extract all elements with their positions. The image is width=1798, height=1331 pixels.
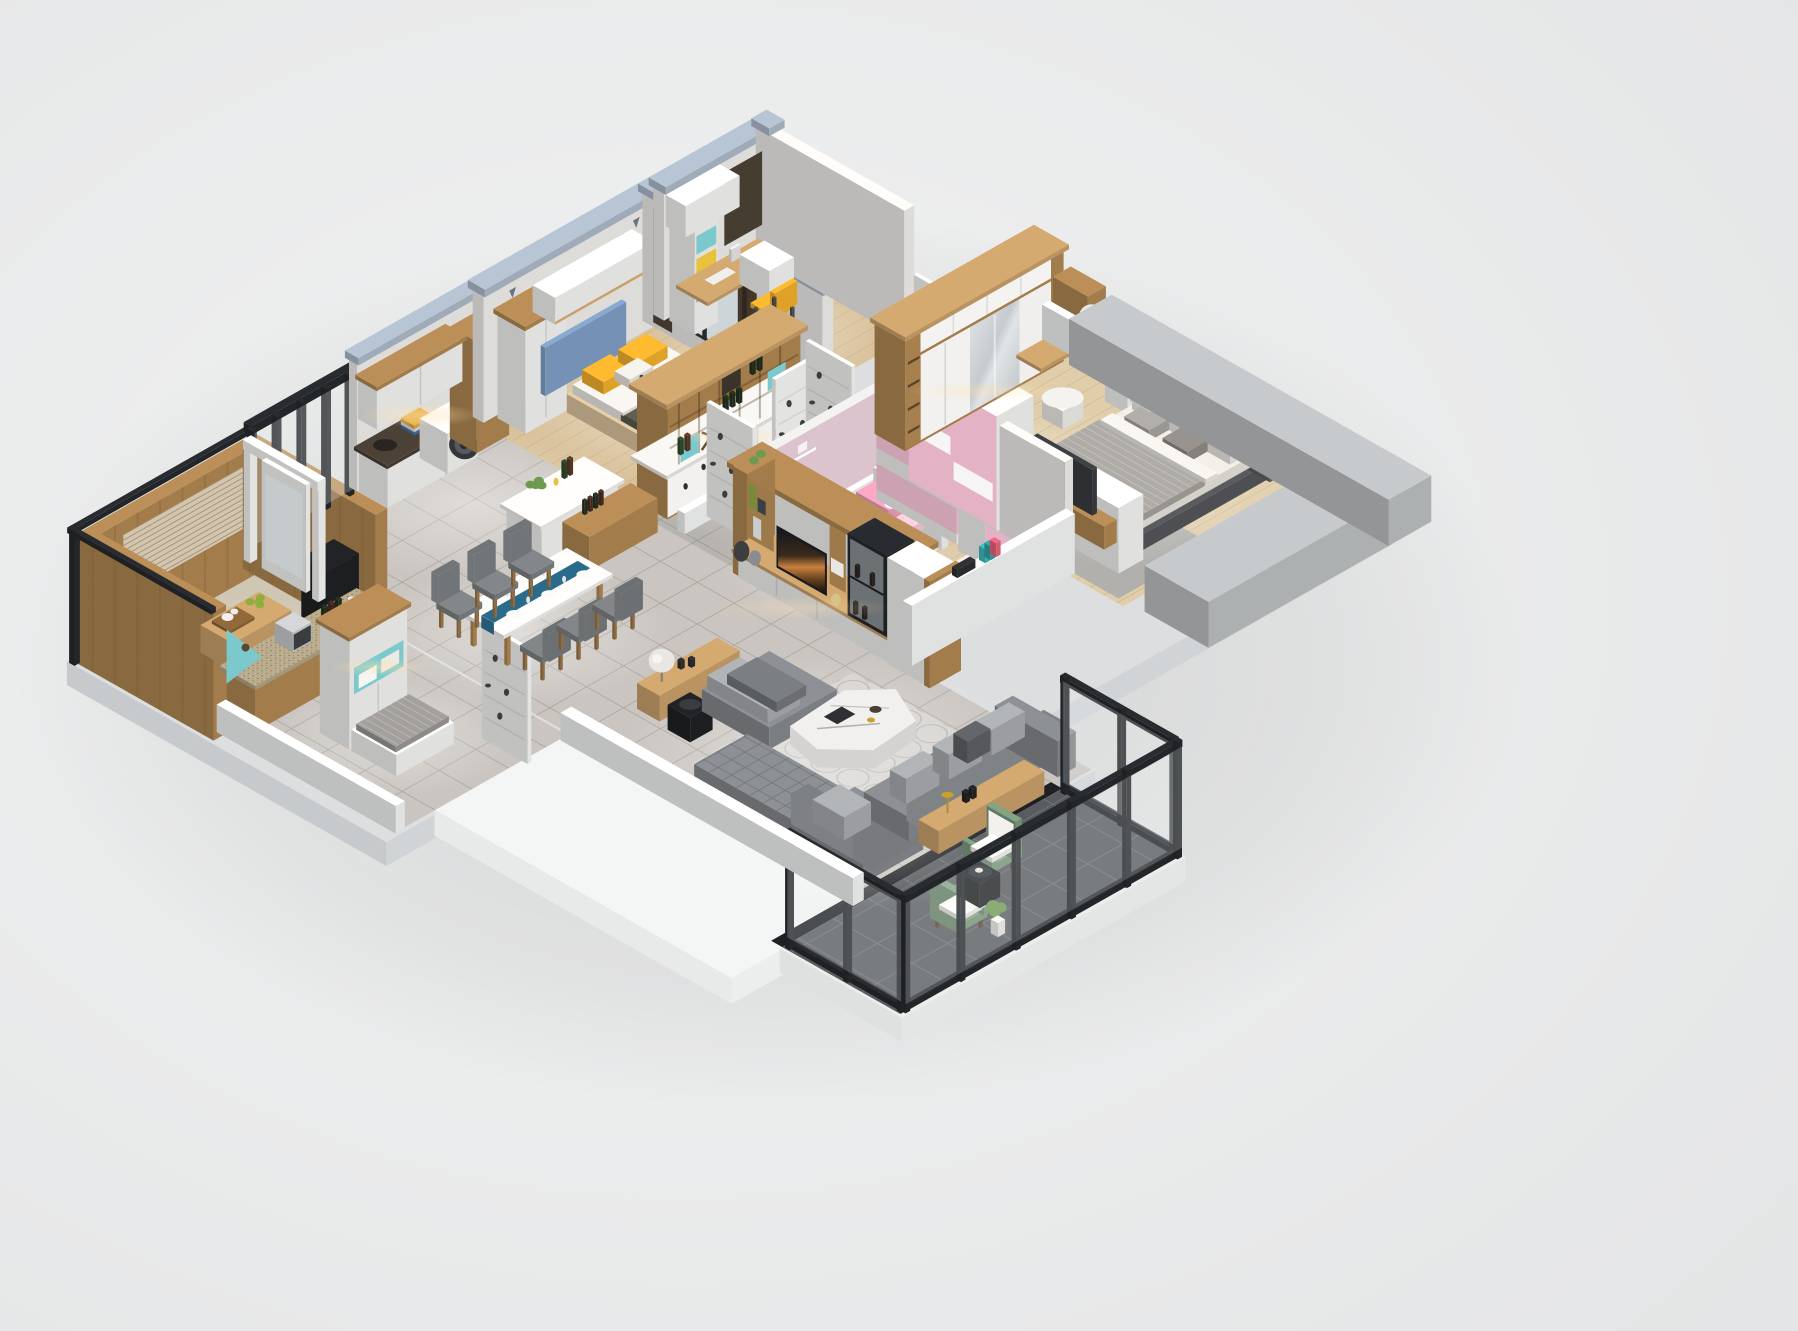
floorplan-render [0, 0, 1798, 1331]
scene-root [0, 0, 1798, 1331]
apartment-render: 3D isometric apartment cutaway floor pla… [0, 0, 1798, 1331]
